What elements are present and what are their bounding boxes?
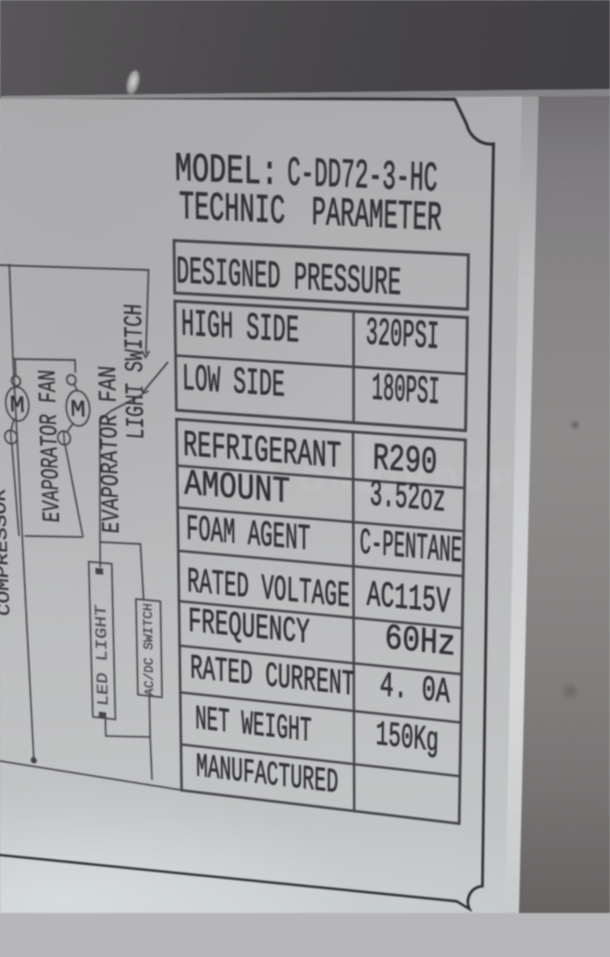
svg-text:EVAPORATOR FAN: EVAPORATOR FAN xyxy=(35,369,67,523)
svg-text:LOW SIDE: LOW SIDE xyxy=(182,359,285,408)
svg-text:AC/DC SWITCH: AC/DC SWITCH xyxy=(142,603,158,697)
svg-text:LIGHT SWITCH: LIGHT SWITCH xyxy=(121,303,152,440)
svg-text:60Hz: 60Hz xyxy=(384,619,456,666)
svg-text:AMOUNT: AMOUNT xyxy=(184,464,290,514)
svg-text:DESIGNED PRESSURE: DESIGNED PRESSURE xyxy=(176,251,402,307)
svg-text:AC115V: AC115V xyxy=(367,575,452,624)
svg-text:M: M xyxy=(70,397,86,425)
svg-text:M: M xyxy=(9,393,25,420)
svg-text:180PSI: 180PSI xyxy=(372,368,441,416)
svg-text:150Kg: 150Kg xyxy=(376,716,440,762)
svg-text:PARAMETER: PARAMETER xyxy=(312,191,443,243)
svg-text:4. 0A: 4. 0A xyxy=(379,666,450,713)
svg-text:NET WEIGHT: NET WEIGHT xyxy=(195,700,312,751)
svg-text:RATED CURRENT: RATED CURRENT xyxy=(190,650,355,706)
svg-text:LED LIGHT: LED LIGHT xyxy=(93,604,113,707)
svg-text:C-PENTANE: C-PENTANE xyxy=(360,523,463,573)
svg-text:COMPRESSOR: COMPRESSOR xyxy=(0,487,15,617)
svg-text:TECHNIC: TECHNIC xyxy=(179,185,285,235)
svg-text:3.52oz: 3.52oz xyxy=(370,475,446,523)
svg-text:320PSI: 320PSI xyxy=(366,312,440,360)
svg-text:HIGH SIDE: HIGH SIDE xyxy=(181,304,299,354)
